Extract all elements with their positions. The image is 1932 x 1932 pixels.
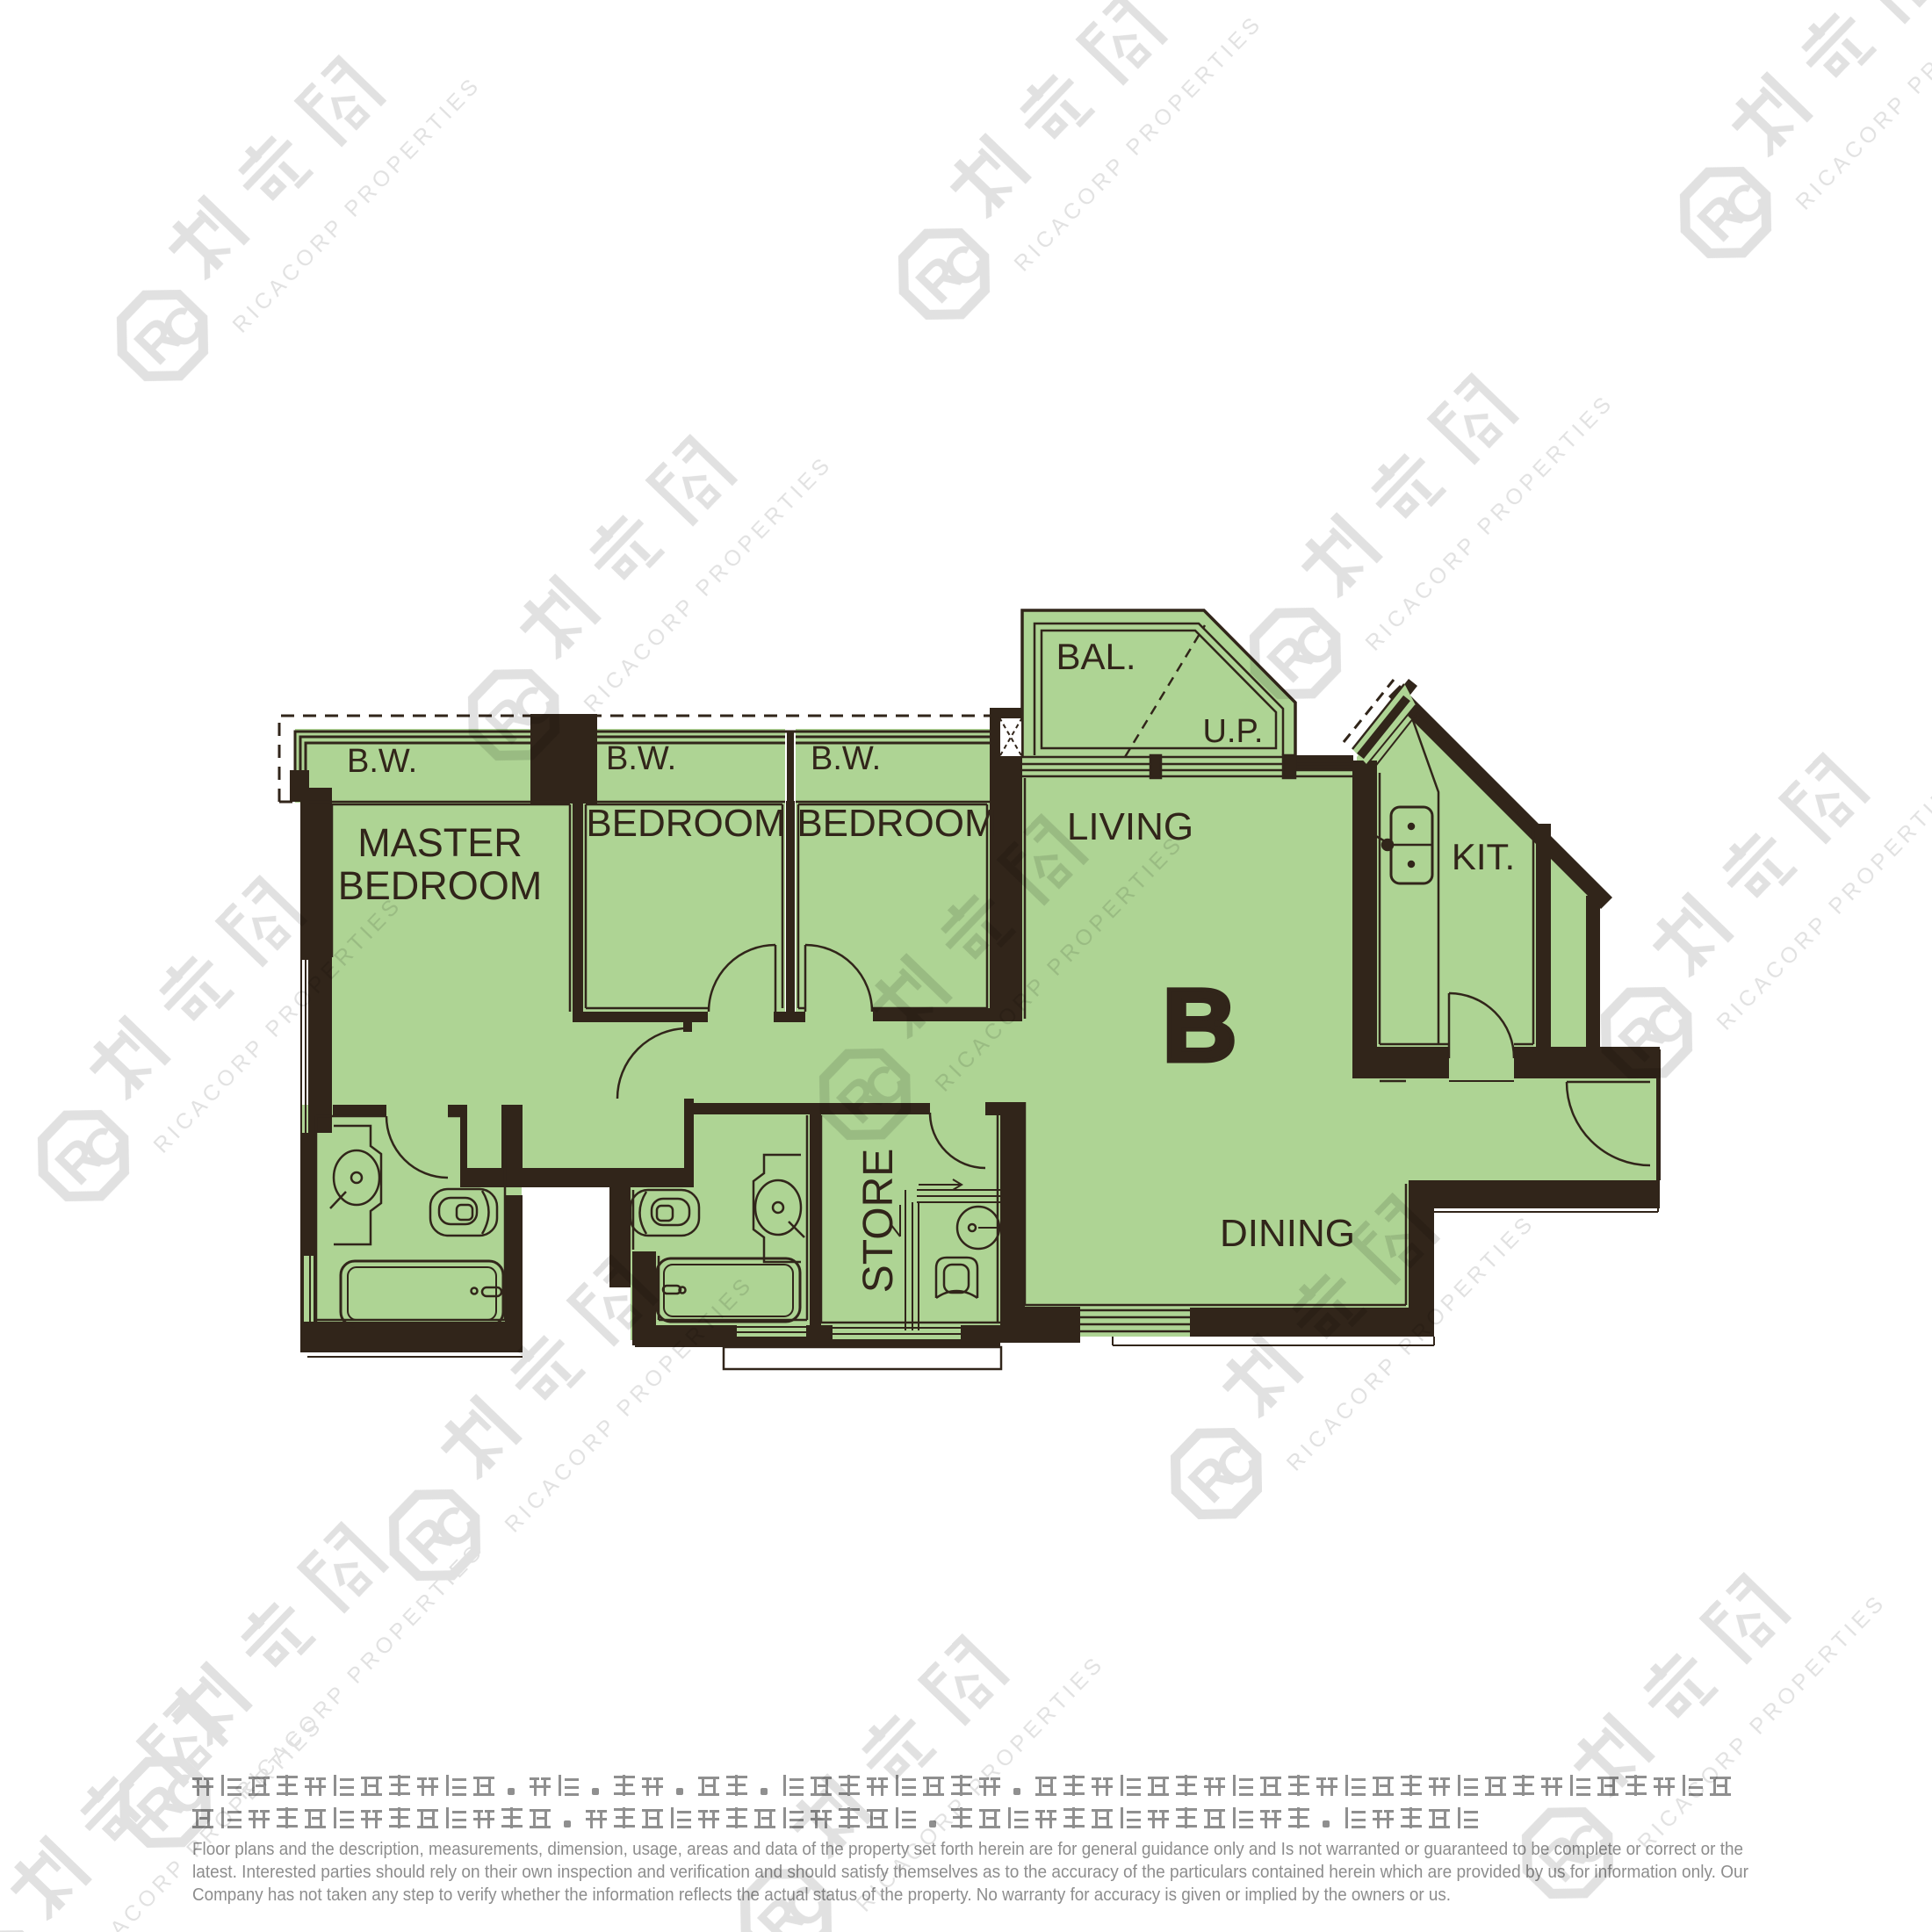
- svg-text:B.W.: B.W.: [347, 743, 417, 780]
- svg-text:BEDROOM: BEDROOM: [797, 802, 996, 845]
- svg-text:MASTER: MASTER: [357, 820, 523, 865]
- svg-text:STORE: STORE: [855, 1149, 902, 1293]
- svg-text:latest. Interested parties sho: latest. Interested parties should rely o…: [192, 1862, 1748, 1882]
- svg-text:DINING: DINING: [1220, 1212, 1355, 1255]
- svg-text:BEDROOM: BEDROOM: [586, 802, 785, 845]
- svg-text:B: B: [1162, 968, 1236, 1084]
- svg-text:BEDROOM: BEDROOM: [338, 863, 543, 908]
- svg-text:B.W.: B.W.: [811, 740, 881, 777]
- svg-text:Floor plans and the descriptio: Floor plans and the description, measure…: [192, 1839, 1743, 1859]
- svg-text:BAL.: BAL.: [1056, 636, 1135, 677]
- svg-text:U.P.: U.P.: [1202, 713, 1263, 750]
- svg-text:B.W.: B.W.: [606, 740, 676, 777]
- svg-text:KIT.: KIT.: [1452, 836, 1515, 877]
